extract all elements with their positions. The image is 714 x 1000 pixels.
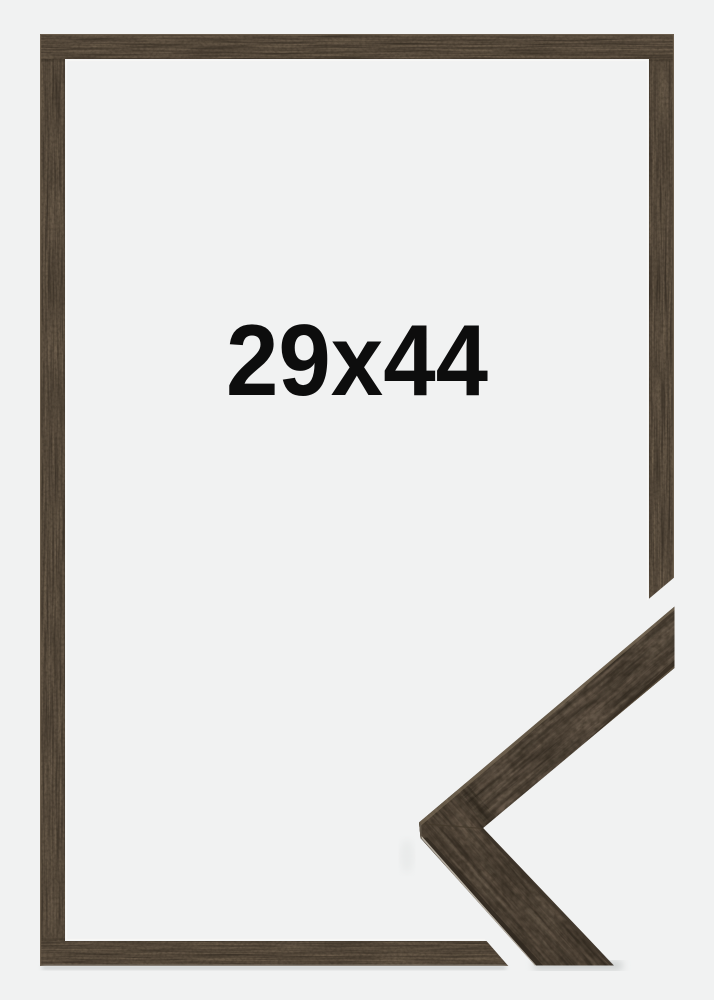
svg-text:29x44: 29x44 xyxy=(226,305,488,417)
